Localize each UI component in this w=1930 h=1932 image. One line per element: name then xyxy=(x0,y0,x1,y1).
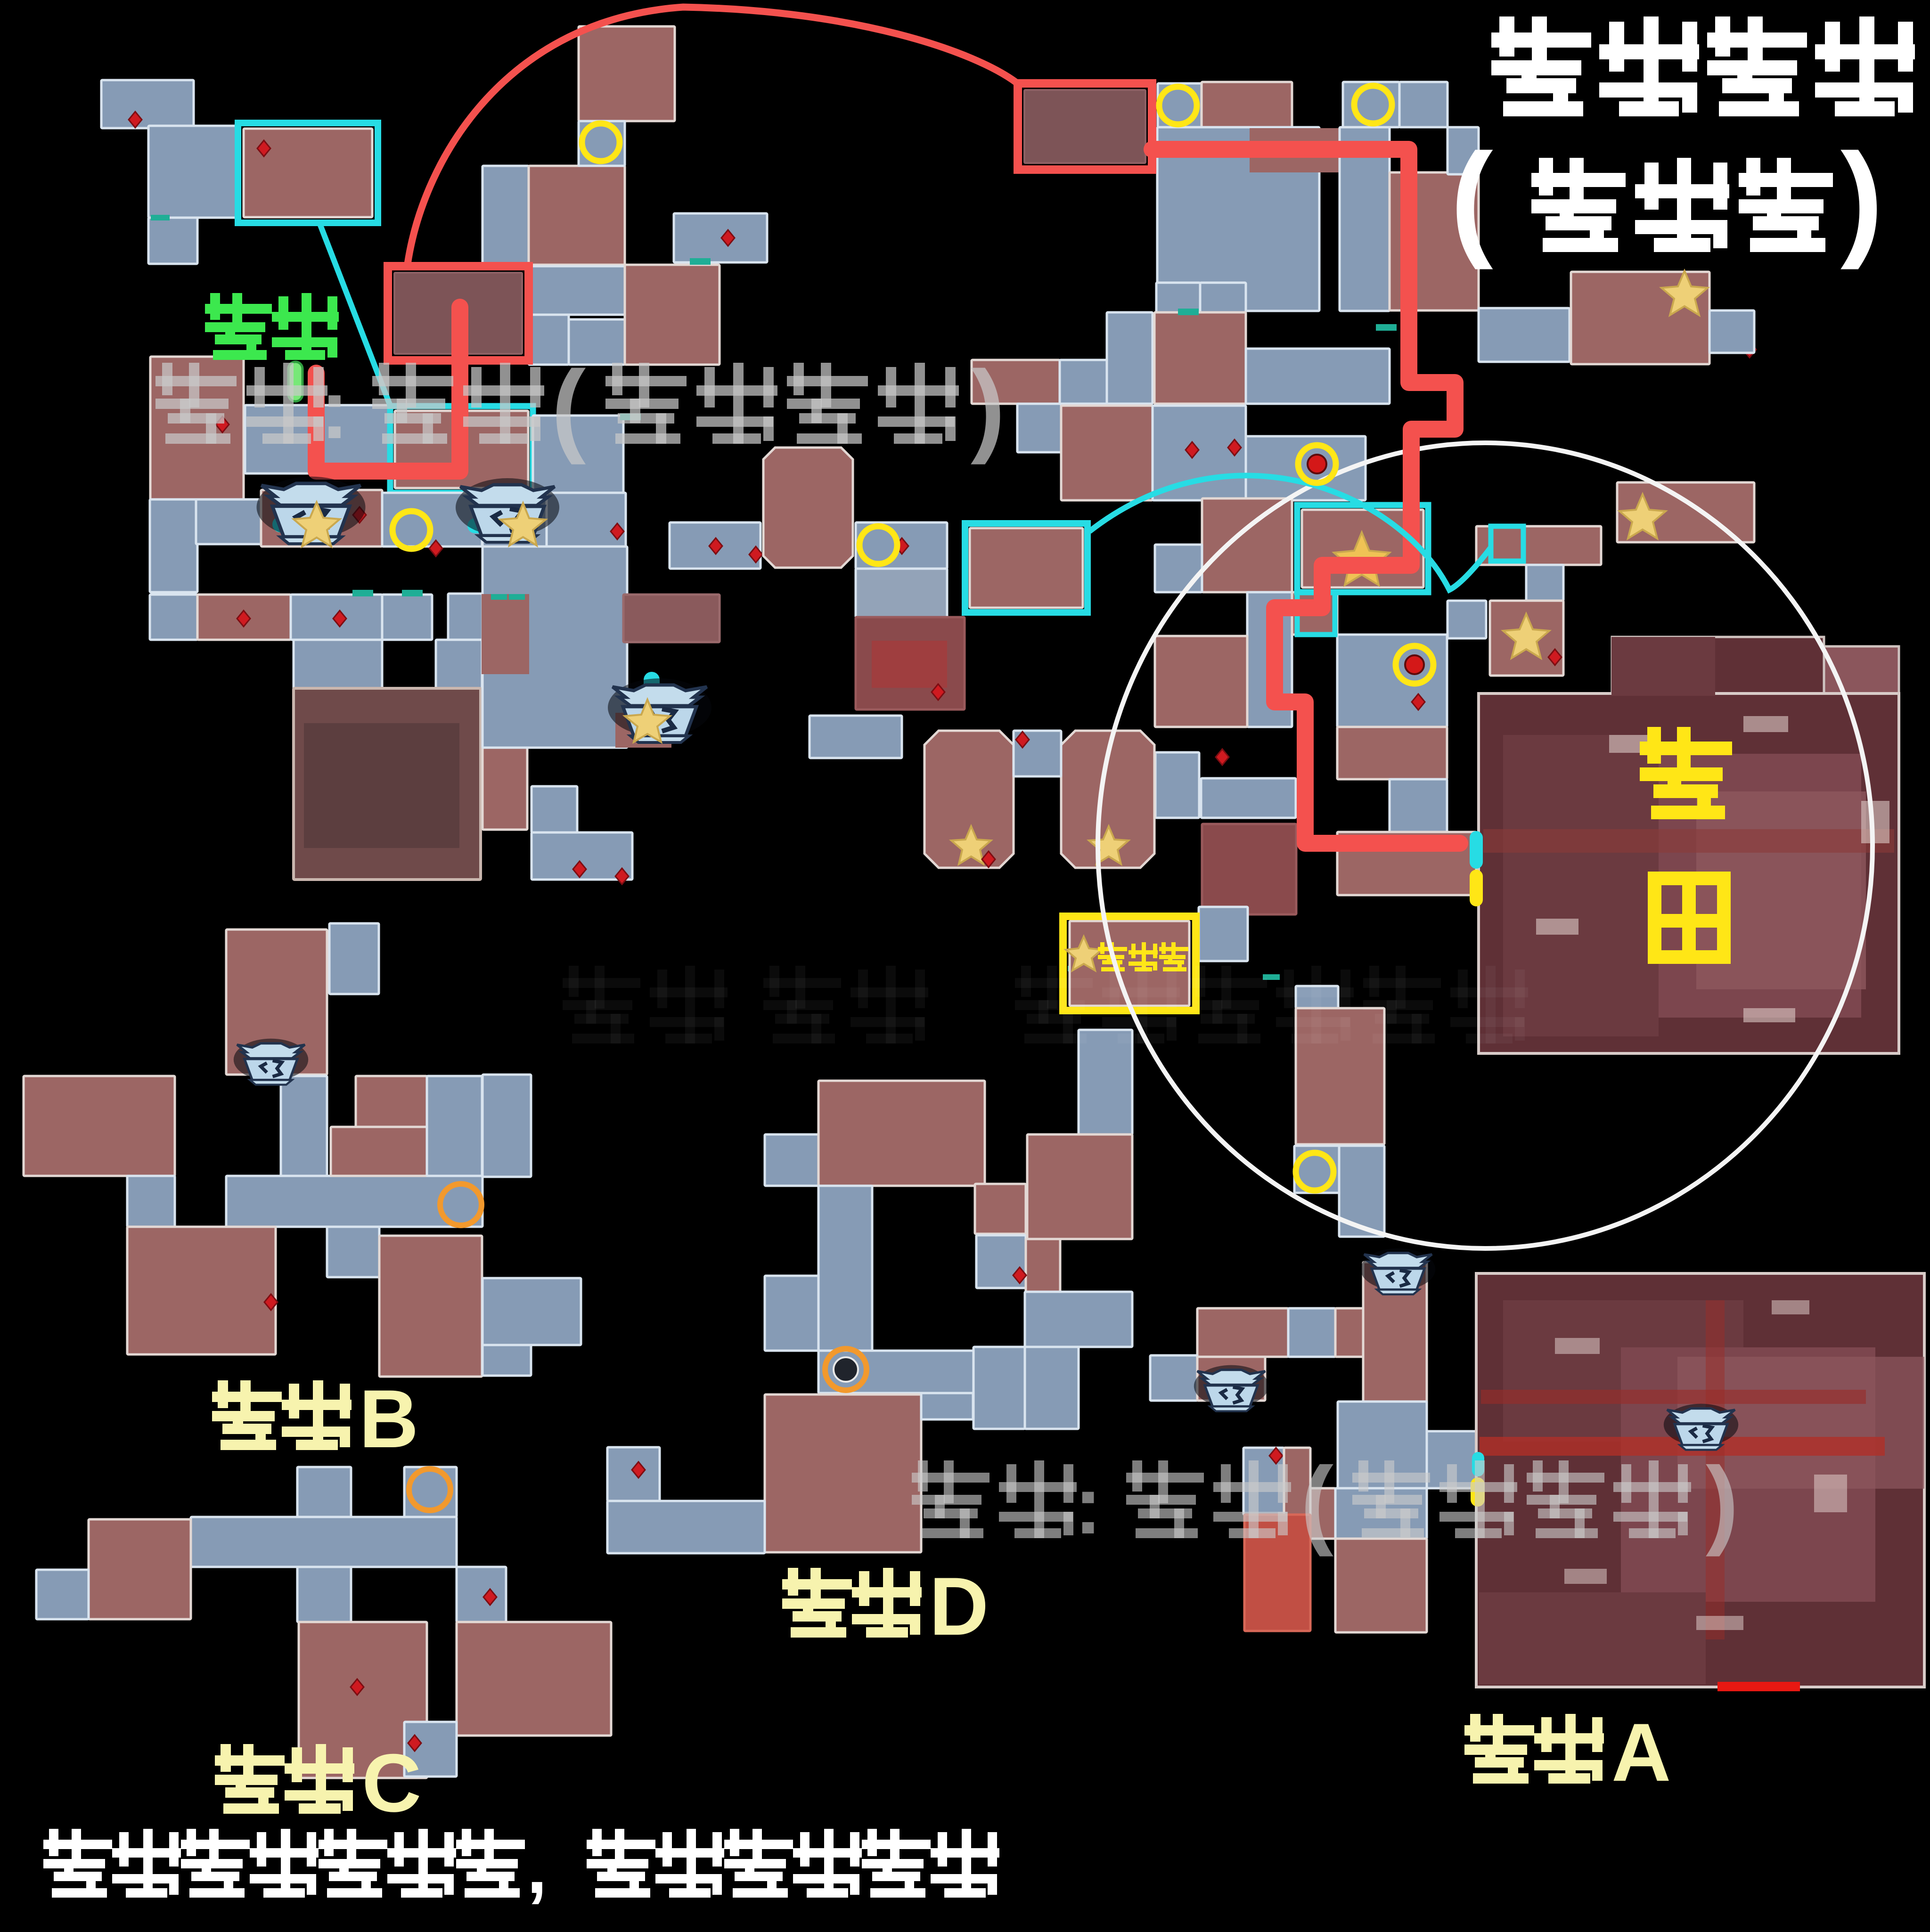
svg-text:B: B xyxy=(359,1373,418,1465)
svg-text:D: D xyxy=(929,1561,989,1653)
svg-text:C: C xyxy=(362,1737,421,1829)
svg-text::: : xyxy=(1074,1459,1102,1551)
svg-text:): ) xyxy=(971,349,1005,465)
svg-text:(: ( xyxy=(551,349,586,465)
svg-text:(: ( xyxy=(1450,127,1495,271)
svg-text::: : xyxy=(320,362,349,457)
svg-text:): ) xyxy=(1840,127,1883,271)
svg-text:,: , xyxy=(527,1827,547,1908)
svg-text:(: ( xyxy=(1300,1446,1333,1557)
svg-text:A: A xyxy=(1611,1707,1671,1799)
svg-text:): ) xyxy=(1706,1446,1739,1557)
